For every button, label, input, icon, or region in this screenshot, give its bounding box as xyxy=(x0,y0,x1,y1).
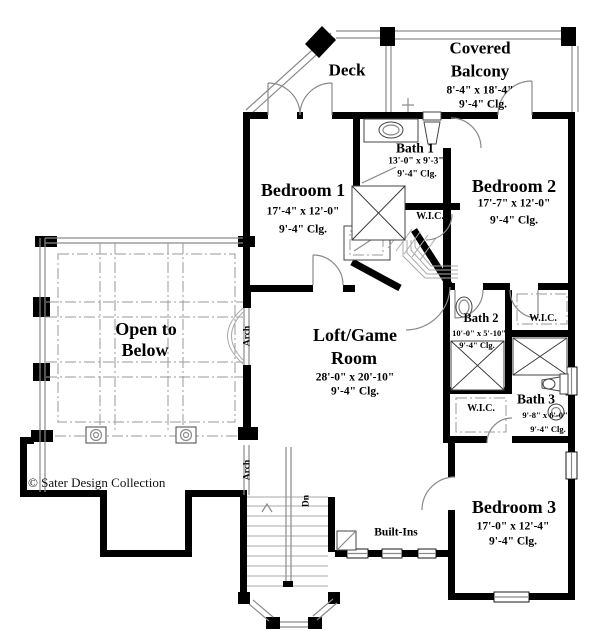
label-wic-bottom: W.I.C. xyxy=(467,404,495,414)
copyright-text: © Sater Design Collection xyxy=(28,475,165,491)
dims-bath-3: 9'-8" x 6'-0" xyxy=(522,411,567,420)
label-arch-upper: Arch xyxy=(243,326,253,346)
room-label-bedroom-1: Bedroom 1 xyxy=(261,181,345,199)
ceiling-bath-2: 9'-4" Clg. xyxy=(459,341,494,350)
label-built-ins: Built-Ins xyxy=(374,527,417,539)
ceiling-covered-balcony: 9'-4" Clg. xyxy=(459,99,507,111)
room-label-bedroom-2: Bedroom 2 xyxy=(472,177,556,195)
room-label-covered-balcony-1: Covered xyxy=(449,40,510,57)
deck-corner-post xyxy=(305,26,336,58)
label-dn: Dn xyxy=(302,495,312,507)
room-label-loft-2: Room xyxy=(331,349,377,367)
ceiling-bath-3: 9'-4" Clg. xyxy=(530,425,565,434)
room-label-open-to-below-1: Open to xyxy=(115,320,177,338)
dims-loft: 28'-0" x 20'-10" xyxy=(316,372,395,384)
room-label-bath-1: Bath 1 xyxy=(396,141,434,155)
column-icon xyxy=(86,427,106,443)
room-label-bath-2: Bath 2 xyxy=(463,312,498,325)
room-label-open-to-below-2: Below xyxy=(122,341,169,359)
label-wic-bath1: W.I.C. xyxy=(416,212,444,222)
dims-bedroom-2: 17'-7" x 12'-0" xyxy=(478,198,551,210)
label-wic-top: W.I.C. xyxy=(529,314,557,324)
ceiling-bedroom-2: 9'-4" Clg. xyxy=(490,215,538,227)
ceiling-bath-1: 9'-4" Clg. xyxy=(397,170,437,180)
room-label-covered-balcony-2: Balcony xyxy=(451,63,510,80)
room-label-bath-3: Bath 3 xyxy=(517,392,555,406)
dims-bath-1: 13'-0" x 9'-3" xyxy=(388,157,443,167)
stair-direction-arrow xyxy=(262,504,272,512)
ceiling-loft: 9'-4" Clg. xyxy=(331,386,379,398)
dims-covered-balcony: 8'-4" x 18'-4" xyxy=(446,85,513,97)
floor-plan: Deck Covered Balcony 8'-4" x 18'-4" 9'-4… xyxy=(0,0,600,644)
room-label-bedroom-3: Bedroom 3 xyxy=(472,498,556,516)
staircase xyxy=(247,447,328,587)
bath3-fixtures xyxy=(513,338,568,420)
room-label-deck: Deck xyxy=(329,62,366,79)
ceiling-bedroom-3: 9'-4" Clg. xyxy=(489,536,537,548)
label-arch-lower: Arch xyxy=(243,460,253,480)
dims-bedroom-1: 17'-4" x 12'-0" xyxy=(267,206,340,218)
toilet-icon xyxy=(560,374,568,394)
ceiling-bedroom-1: 9'-4" Clg. xyxy=(279,224,327,236)
room-label-loft-1: Loft/Game xyxy=(313,326,397,344)
toilet-icon xyxy=(423,112,441,120)
column-icon xyxy=(176,427,196,443)
dims-bath-2: 10'-0" x 5'-10" xyxy=(452,329,506,338)
open-to-below-area xyxy=(40,238,249,495)
dims-bedroom-3: 17'-0" x 12'-4" xyxy=(477,521,550,533)
